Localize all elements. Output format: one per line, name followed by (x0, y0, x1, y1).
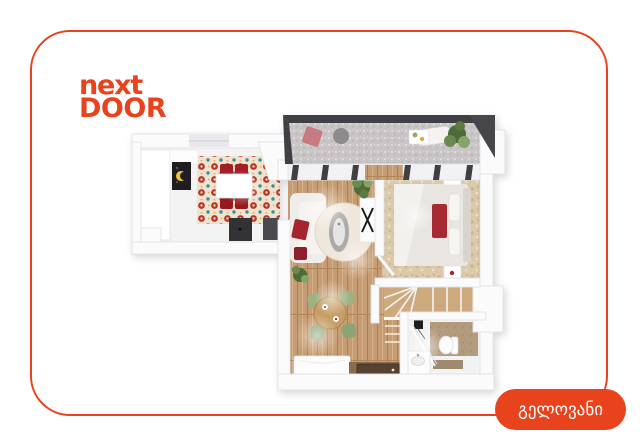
screenshot-canvas: next DOOR (0, 0, 640, 447)
tv-console (360, 198, 375, 242)
kitchen-window (189, 135, 229, 147)
location-badge-label: გელოვანი (518, 400, 603, 420)
cooktop (172, 162, 191, 190)
listing-card: next DOOR (30, 30, 608, 416)
floor-plan-render (117, 108, 507, 408)
location-badge[interactable]: გელოვანი (495, 389, 626, 430)
